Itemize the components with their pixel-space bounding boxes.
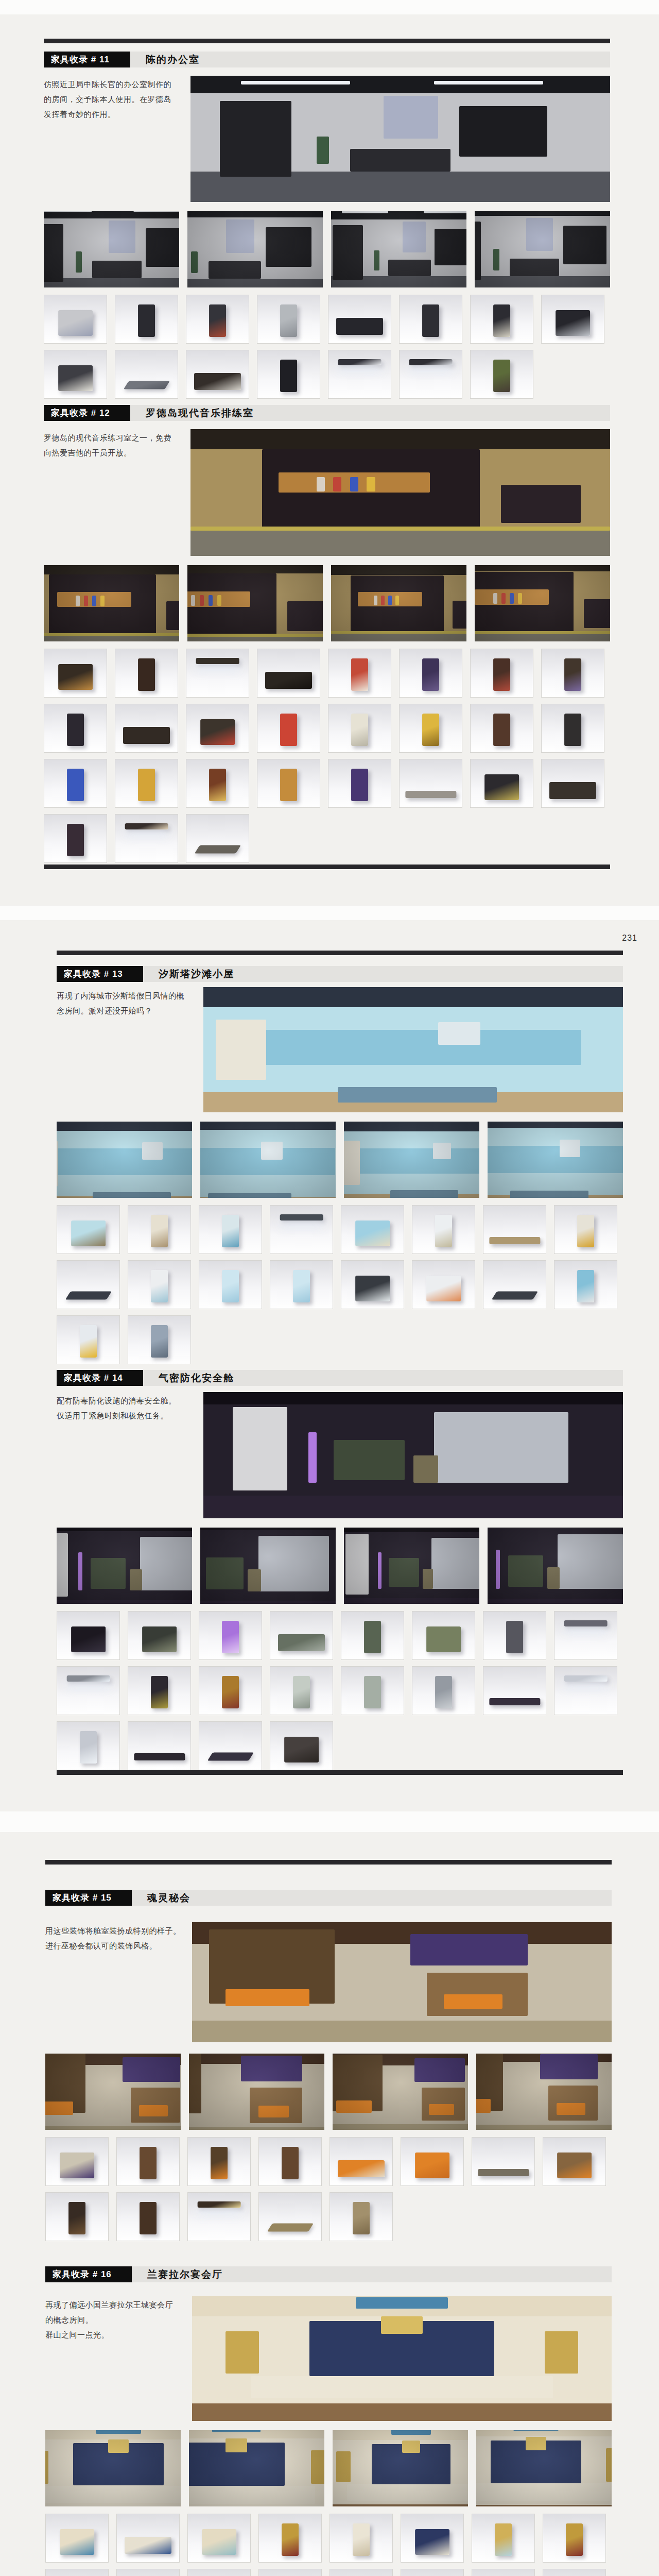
scene-prop [44,633,179,636]
item-folding-gate [57,1611,120,1660]
item-gold-rug [472,2569,535,2576]
section-body: 再现了偏远小国兰赛拉尔王城宴会厅的概念房间。群山之间一点光。 [45,2296,612,2421]
item-royal-chair [258,2514,322,2563]
item-rolling-pinboard [541,295,604,344]
scene-prop [142,1142,163,1160]
furniture-section-11: 家具收录 # 11 陈的办公室 仿照近卫局中陈长官的办公室制作的的房间，交予陈本… [44,52,610,399]
guitar-amber-icon [280,769,298,801]
scene-prop [381,2316,423,2334]
scene-prop [351,1148,479,1174]
scene-prop [381,596,385,606]
section-title: 兰赛拉尔宴会厅 [132,2266,612,2282]
scene-prop [78,1552,82,1591]
scene-prop [209,595,213,606]
item-pumpkin-row [329,2137,393,2186]
item-row [45,2569,612,2576]
furniture-section-13: 家具收录 # 13 汐斯塔沙滩小屋 再现了内海城市汐斯塔假日风情的概念房间。派对… [57,966,623,1364]
pumpkin-stack-icon [415,2153,450,2178]
item-gilt-mirror [45,2569,109,2576]
item-drum-kit [470,759,533,808]
scene-prop [57,1148,192,1175]
scene-prop [374,250,379,270]
description-line: 的概念房间。 [45,2312,188,2327]
scene-prop [378,1552,381,1589]
item-vanity-shelf [128,1205,191,1254]
scene-prop [434,81,543,84]
item-curtain-drape-right [270,1260,333,1309]
view-thumbnail [344,1122,479,1198]
scene-prop [92,261,142,278]
section-title: 魂灵秘会 [132,1890,612,1906]
pullup-rack-icon [422,304,440,337]
item-hanging-light-tubes [57,1721,120,1770]
item-ceiling-spotlight [554,1666,617,1715]
item-dark-rug [483,1260,546,1309]
dark-baseboard-icon [489,1698,540,1705]
scene-prop [191,595,196,606]
scene-prop [429,2104,454,2115]
scene-prop [189,2486,315,2504]
view-thumbnail [200,1122,336,1198]
section-badge: 家具收录 # 15 [45,1890,132,1906]
item-pipe-spotlight [57,1666,120,1715]
scene-prop [45,2102,73,2115]
scene-prop [45,2451,48,2483]
item-weapon-locker [186,295,249,344]
view-thumbnails-row [57,1528,623,1604]
weapon-locker-icon [209,304,227,337]
folding-screen-icon [67,714,84,746]
view-thumbnail [45,2054,181,2130]
item-pumpkin-fireplace [543,2137,606,2186]
scene-prop [45,2486,181,2503]
item-hazmat-suit [270,1666,333,1715]
scene-prop [241,81,350,84]
scene-prop [510,259,559,276]
view-thumbnail-render [331,565,466,641]
starfish-bench-icon [426,1276,461,1301]
scene-prop [317,137,329,164]
description-line: 再现了内海城市汐斯塔假日风情的概 [57,988,200,1003]
covered-generator-icon [284,1737,319,1762]
view-thumbnail-render [488,1528,623,1604]
scene-prop [220,101,291,177]
scene-prop [190,527,610,530]
section-header: 家具收录 # 12 罗德岛现代音乐排练室 [44,405,610,421]
item-stone-wall-moon [45,2137,109,2186]
item-taped-panel [128,1666,191,1715]
guitar-walnut-icon [493,714,511,746]
item-wall-calendar [554,1260,617,1309]
item-guitar-strap-rack [470,649,533,698]
item-potted-cactus [470,350,533,399]
scene-prop [336,2451,351,2482]
view-thumbnail-render [189,2054,324,2130]
valve-apparatus-icon [142,1626,177,1652]
banquet-table-icon [125,2537,172,2554]
scene-prop [217,595,222,606]
scene-prop [146,228,179,267]
item-training-machine [115,295,178,344]
scene-prop [545,2331,578,2374]
view-thumbnail-render [44,565,179,641]
view-thumbnail [476,2054,612,2130]
guitar-blue-icon [67,769,84,801]
section-header: 家具收录 # 14 气密防化安全舱 [57,1370,623,1386]
item-medallion-wall [45,2514,109,2563]
guitar-red-icon [280,714,298,746]
item-decon-door-frame [412,1666,475,1715]
marble-column-icon [353,2523,370,2556]
wood-panel-icon [489,1237,540,1244]
certificate-frames-icon [58,365,93,391]
scene-prop [476,2099,491,2113]
item-row [57,1721,623,1770]
scene-prop [475,631,610,634]
view-thumbnail-render [187,211,323,287]
item-refreshment-table [341,1260,404,1309]
page-bottom-rule [44,865,610,869]
scene-prop [563,226,606,265]
section-title: 汐斯塔沙滩小屋 [143,966,623,982]
item-metal-canister [257,295,320,344]
item-wood-panel [483,1205,546,1254]
item-gas-cylinders [199,1666,262,1715]
scene-prop [395,596,399,606]
item-bar-counter [257,649,320,698]
section-header: 家具收录 # 13 汐斯塔沙滩小屋 [57,966,623,982]
scene-prop [475,222,481,280]
item-boarded-door [116,2137,180,2186]
scene-prop [513,2430,559,2431]
bar-stool-icon [138,658,155,691]
section-badge: 家具收录 # 11 [44,52,130,67]
item-row [57,1611,623,1660]
display-cabinet-icon [564,658,582,691]
scene-prop [453,601,466,628]
scene-prop [123,2057,180,2082]
book-page-left: 家具收录 # 11 陈的办公室 仿照近卫局中陈长官的办公室制作的的房间，交予陈本… [0,14,659,906]
furniture-section-16: 家具收录 # 16 兰赛拉尔宴会厅 再现了偏远小国兰赛拉尔王城宴会厅的概念房间。… [45,2266,612,2576]
view-thumbnail-render [344,1528,479,1604]
pipe-spotlight-icon [66,1675,110,1682]
scene-prop [402,2441,420,2453]
scene-prop [44,224,63,282]
pumpkin-row-icon [338,2160,385,2177]
item-row [44,350,610,399]
section-body: 仿照近卫局中陈长官的办公室制作的的房间，交予陈本人使用。在罗德岛发挥着奇妙的作用… [44,76,610,202]
view-thumbnail [45,2430,181,2506]
hanging-light-tubes-icon [80,1731,97,1764]
scene-prop [241,2056,302,2081]
item-ancient-books [329,2192,393,2241]
scene-prop [508,1555,543,1587]
section-title: 陈的办公室 [130,52,610,67]
scene-image [192,1922,612,2042]
scene-prop [518,593,522,604]
scene-prop [338,1087,497,1102]
scene-prop [350,149,451,172]
mini-excavator-icon [426,1626,461,1652]
item-floor-mat [258,2192,322,2241]
item-checkered-carpet [115,350,178,399]
wall-hook-rack-icon [196,658,239,664]
scene-prop [540,2054,598,2079]
scene-image [190,76,610,202]
item-uv-lamp [199,1611,262,1660]
scene-prop [374,596,377,606]
medical-stretcher-icon [278,1634,325,1651]
description-line: 进行巫秘会都认可的装饰风格。 [45,1938,188,1953]
view-thumbnail-render [333,2054,468,2130]
item-anchor-ornament [128,1315,191,1364]
section-body: 再现了内海城市汐斯塔假日风情的概念房间。派对还没开始吗？ [57,987,623,1112]
item-protective-boards [341,1666,404,1715]
uv-lamp-icon [222,1621,239,1653]
item-guitar-sunburst [186,759,249,808]
view-thumbnail [475,211,610,287]
view-thumbnail [44,211,179,287]
item-parquet-tile [258,2569,322,2576]
floor-ramp-icon [207,1752,254,1760]
stone-baseboard-icon [478,2169,529,2176]
item-document-shelf [470,295,533,344]
scene-prop [91,1558,126,1589]
item-wall-hook-rack [186,649,249,698]
view-thumbnail-render [187,565,323,641]
scene-prop [493,593,497,604]
view-thumbnail-render [44,211,179,287]
potted-cactus-icon [493,360,511,392]
item-light-truss [115,814,178,863]
item-display-cabinet [541,649,604,698]
sailboat-picture-icon [355,1221,390,1246]
scene-prop [92,596,96,606]
section-title: 罗德岛现代音乐排练室 [130,405,610,421]
scene-prop [189,2054,201,2113]
scene-prop [166,601,179,630]
display-shelf-star-icon [80,1325,97,1358]
scene-prop [130,1569,142,1590]
view-thumbnails-row [44,211,610,287]
light-truss-icon [125,823,168,829]
scene-prop [187,634,323,637]
furniture-section-14: 家具收录 # 14 气密防化安全舱 配有防毒防化设施的消毒安全舱。仅适用于紧急时… [57,1370,623,1770]
item-wood-baseboard [116,2569,180,2576]
scene-prop [246,1030,581,1065]
item-starfish-bench [412,1260,475,1309]
scene-prop [336,2100,372,2113]
wall-baseboard-icon [405,791,456,798]
scene-prop [248,1569,261,1591]
item-display-shelf-star [57,1315,120,1364]
medallion-wall-icon [60,2529,95,2555]
scene-prop [388,596,392,606]
checkered-carpet-icon [124,381,170,389]
item-bar-stool [115,649,178,698]
book-page-231: 231 家具收录 # 13 汐斯塔沙滩小屋 再现了内海城市汐斯塔假日风情的概念房… [0,920,659,1811]
scene-image [192,2296,612,2421]
item-bottle-lamp [412,1205,475,1254]
boarded-door-icon [140,2147,157,2179]
anchor-ornament-icon [151,1325,168,1358]
view-thumbnail [488,1122,623,1198]
rock-poster-purple-icon [422,658,440,691]
item-medical-stretcher [270,1611,333,1660]
item-dark-tarp [128,1721,191,1770]
scene-prop [57,1141,58,1187]
scene-prop [410,1934,528,1965]
item-guitar-violet [328,759,391,808]
scene-prop [331,631,466,634]
scene-prop [212,2430,261,2432]
item-dark-floor-mat [57,1260,120,1309]
scene-prop [226,219,254,253]
metal-canister-icon [280,304,298,337]
scene-prop [287,601,323,631]
dark-rug-icon [492,1291,538,1299]
scene-image [190,429,610,556]
item-candle-cabinet [187,2569,251,2576]
item-chord-wall-sign [44,649,107,698]
view-thumbnail [331,565,466,641]
scene-prop [459,106,547,157]
scene-prop [84,596,88,606]
document-shelf-icon [493,304,511,337]
item-row [44,759,610,808]
view-thumbnails-row [44,565,610,641]
scene-prop [226,2438,248,2452]
scene-prop [434,1412,568,1483]
gothic-chair-icon [140,2202,157,2234]
item-guitar-yellow [399,704,462,753]
section-description: 仿照近卫局中陈长官的办公室制作的的房间，交予陈本人使用。在罗德岛发挥着奇妙的作用… [44,77,187,122]
item-row [57,1315,623,1364]
scene-prop [233,1407,287,1490]
scene-prop [342,211,388,213]
furniture-section-12: 家具收录 # 12 罗德岛现代音乐排练室 罗德岛的现代音乐练习室之一，免费向热爱… [44,405,610,863]
item-cauldron-stand [45,2192,109,2241]
item-row [57,1260,623,1309]
item-witch-writing-desk [258,2137,322,2186]
section-description: 再现了偏远小国兰赛拉尔王城宴会厅的概念房间。群山之间一点光。 [45,2297,188,2342]
bottle-lamp-icon [435,1215,453,1247]
guitar-cream-icon [351,714,369,746]
scene-prop [333,225,363,280]
scene-prop [606,2448,612,2481]
view-thumbnail-render [344,1122,479,1198]
taped-panel-icon [151,1676,168,1708]
curtain-drape-right-icon [293,1270,310,1302]
ancient-books-icon [353,2202,370,2234]
item-pumpkin-lantern-tree [187,2137,251,2186]
scene-prop [433,1143,451,1159]
item-gothic-chair [116,2192,180,2241]
item-oar-stand [554,1205,617,1254]
scene-prop [414,2058,464,2082]
guitar-strap-rack-icon [493,658,511,691]
view-thumbnail [189,2430,324,2506]
scene-prop [209,261,261,279]
item-grand-chandelier [401,2569,464,2576]
scene-prop [266,227,311,267]
page-number: 231 [622,934,637,943]
wall-backdrop-icon [58,310,93,336]
view-thumbnail [44,565,179,641]
item-arched-mirror [472,2514,535,2563]
item-row [45,2137,612,2186]
scene-prop [139,2105,168,2116]
scene-prop [251,2376,553,2399]
scene-prop [526,218,553,251]
section-description: 配有防毒防化设施的消毒安全舱。仅适用于紧急时刻和极危任务。 [57,1393,200,1423]
item-ornate-wardrobe [543,2569,606,2576]
scene-prop [96,2430,141,2434]
item-curtain-rail [270,1205,333,1254]
scene-prop [389,1558,419,1587]
guitar-violet-icon [351,769,369,801]
scene-prop [526,2437,546,2451]
item-hand-tool [341,1611,404,1660]
decon-door-frame-icon [435,1676,453,1708]
description-line: 再现了偏远小国兰赛拉尔王城宴会厅 [45,2297,188,2312]
amp-stack-icon [200,719,235,745]
description-line: 仿照近卫局中陈长官的办公室制作的 [44,77,187,92]
view-thumbnail [488,1528,623,1604]
scene-prop [384,96,438,139]
item-row [44,649,610,698]
scene-prop [93,1192,171,1198]
item-thumbnail-grid [44,295,610,399]
section-body: 罗德岛的现代音乐练习室之一，免费向热爱吉他的干员开放。 [44,429,610,556]
pumpkin-fireplace-icon [557,2153,592,2178]
vanity-shelf-icon [151,1215,168,1247]
item-floor-ramp [199,1721,262,1770]
view-thumbnails-row [45,2054,612,2130]
item-wall-console [541,759,604,808]
view-thumbnail [333,2430,468,2506]
item-workbench [115,704,178,753]
witch-writing-desk-icon [282,2147,299,2179]
section-header: 家具收录 # 16 兰赛拉尔宴会厅 [45,2266,612,2282]
view-thumbnail [476,2430,612,2506]
scene-prop [493,249,499,270]
floor-mat-icon [267,2223,314,2231]
page-bottom-rule [57,1770,623,1775]
throne-chair-icon [566,2523,583,2556]
scene-prop [413,1455,439,1483]
scene-prop [501,593,506,604]
page-top-rule [45,1860,612,1865]
item-throne-chair [543,2514,606,2563]
view-thumbnail [187,565,323,641]
royal-chair-icon [282,2523,299,2556]
item-row [44,704,610,753]
scene-prop [258,2106,289,2117]
scene-prop [216,1020,266,1080]
scene-prop [388,260,431,276]
item-surfboard-rack [199,1205,262,1254]
item-thumbnail-grid [45,2514,612,2576]
item-stage-curtain [44,814,107,863]
section-header: 家具收录 # 11 陈的办公室 [44,52,610,67]
section-header: 家具收录 # 15 魂灵秘会 [45,1890,612,1906]
scene-prop [367,477,375,491]
view-thumbnail-render [475,565,610,641]
night-window-curtain-icon [415,2529,450,2555]
description-line: 的房间，交予陈本人使用。在罗德岛 [44,92,187,107]
ceiling-spotlight-icon [564,1675,608,1682]
